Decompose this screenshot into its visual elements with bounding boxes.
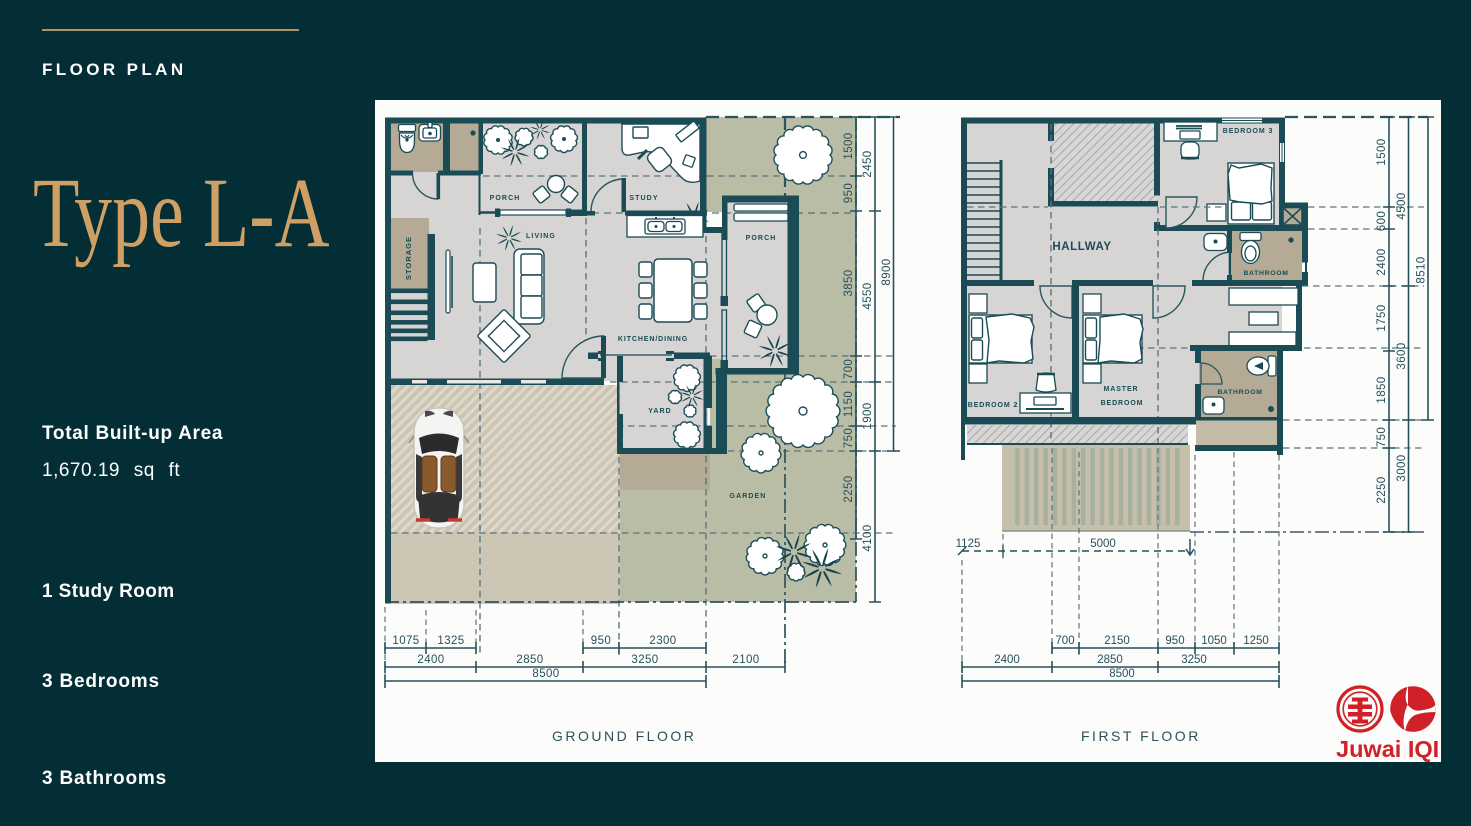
svg-text:BEDROOM 2: BEDROOM 2 (968, 402, 1019, 409)
svg-text:STORAGE: STORAGE (404, 236, 413, 280)
svg-text:3250: 3250 (1181, 654, 1207, 666)
svg-text:PORCH: PORCH (490, 195, 521, 202)
svg-text:8510: 8510 (1416, 256, 1428, 283)
svg-text:600: 600 (1376, 211, 1388, 231)
svg-text:YARD: YARD (648, 408, 672, 415)
svg-text:950: 950 (843, 183, 855, 203)
svg-text:2850: 2850 (516, 654, 543, 666)
svg-text:STUDY: STUDY (629, 195, 658, 202)
svg-text:2250: 2250 (843, 475, 855, 502)
svg-text:1125: 1125 (956, 538, 981, 550)
svg-text:1075: 1075 (392, 635, 419, 647)
svg-text:BEDROOM 3: BEDROOM 3 (1223, 128, 1274, 135)
svg-text:2100: 2100 (732, 654, 759, 666)
svg-text:950: 950 (591, 635, 611, 647)
svg-text:8500: 8500 (532, 668, 559, 680)
svg-text:LIVING: LIVING (526, 233, 556, 240)
svg-text:3000: 3000 (1396, 454, 1408, 481)
svg-text:3600: 3600 (1396, 342, 1408, 369)
svg-text:GARDEN: GARDEN (730, 493, 767, 500)
svg-text:700: 700 (843, 359, 855, 379)
svg-text:2400: 2400 (417, 654, 444, 666)
svg-text:4500: 4500 (1396, 192, 1408, 219)
svg-text:MASTER: MASTER (1104, 386, 1139, 393)
svg-text:1500: 1500 (1376, 138, 1388, 165)
svg-text:1250: 1250 (1243, 635, 1269, 647)
svg-text:2400: 2400 (1376, 248, 1388, 275)
svg-text:5000: 5000 (1090, 538, 1116, 550)
svg-text:2250: 2250 (1376, 476, 1388, 503)
svg-text:1900: 1900 (862, 402, 874, 429)
svg-text:4550: 4550 (862, 282, 874, 309)
svg-text:HALLWAY: HALLWAY (1052, 241, 1111, 253)
svg-text:1750: 1750 (1376, 304, 1388, 331)
svg-text:950: 950 (1165, 635, 1184, 647)
svg-text:PORCH: PORCH (746, 235, 777, 242)
svg-text:1500: 1500 (843, 132, 855, 159)
svg-text:1050: 1050 (1201, 635, 1227, 647)
svg-text:1325: 1325 (437, 635, 464, 647)
svg-text:8900: 8900 (881, 258, 893, 285)
svg-text:2150: 2150 (1104, 635, 1130, 647)
svg-text:8500: 8500 (1109, 668, 1135, 680)
svg-text:KITCHEN/DINING: KITCHEN/DINING (618, 336, 688, 343)
svg-text:BATHROOM: BATHROOM (1217, 389, 1262, 396)
svg-text:3250: 3250 (631, 654, 658, 666)
svg-text:1150: 1150 (843, 391, 855, 417)
svg-text:2300: 2300 (649, 635, 676, 647)
svg-text:BATHROOM: BATHROOM (1243, 270, 1288, 277)
svg-text:750: 750 (843, 428, 855, 448)
svg-text:2450: 2450 (862, 150, 874, 177)
svg-text:2850: 2850 (1097, 654, 1123, 666)
svg-text:3850: 3850 (843, 269, 855, 296)
svg-text:700: 700 (1055, 635, 1074, 647)
svg-text:750: 750 (1376, 427, 1388, 447)
svg-text:Juwai IQI: Juwai IQI (1336, 736, 1439, 762)
svg-text:4100: 4100 (862, 524, 874, 551)
svg-text:2400: 2400 (994, 654, 1020, 666)
svg-text:BEDROOM: BEDROOM (1101, 400, 1144, 407)
svg-text:1850: 1850 (1376, 376, 1388, 403)
